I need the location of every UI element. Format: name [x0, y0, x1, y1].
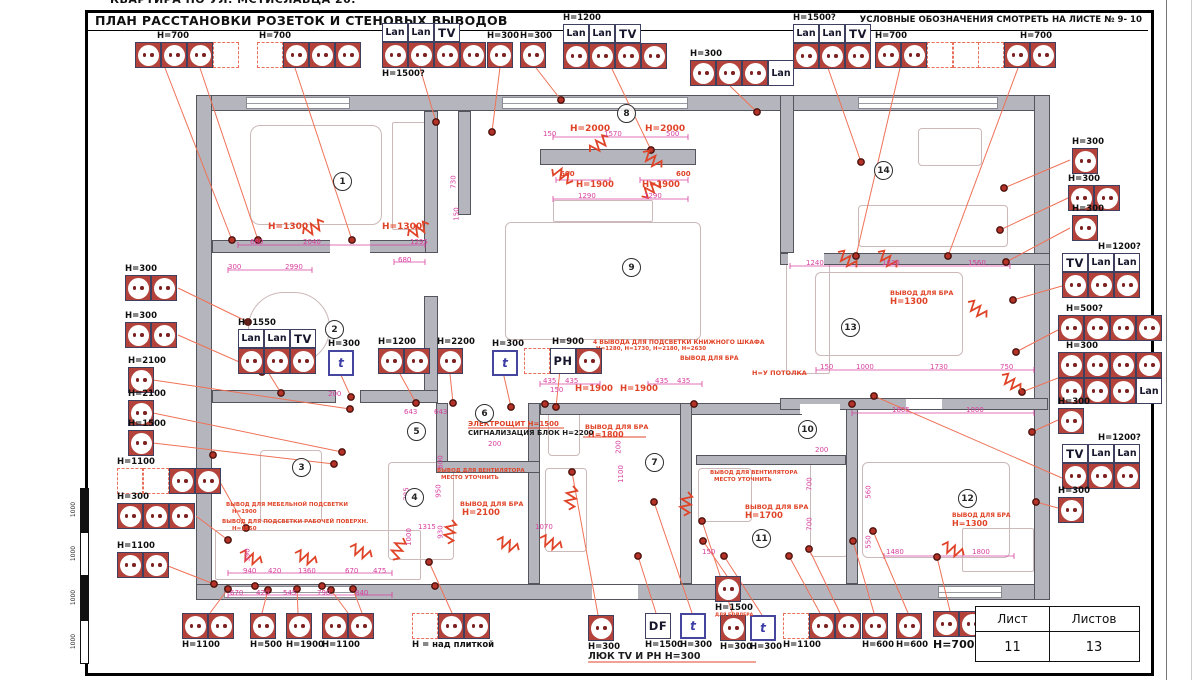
power-socket	[378, 348, 404, 374]
room-number: 4	[405, 488, 424, 507]
dimension-label: 1730	[930, 363, 948, 371]
heating-zigzag-symbol	[965, 298, 990, 321]
dimension-label: 475	[373, 567, 386, 575]
socket-pin	[472, 624, 476, 628]
socket-face	[411, 45, 432, 66]
room-number: 2	[325, 320, 344, 339]
socket-face	[1061, 500, 1082, 521]
socket-pin	[750, 71, 754, 75]
socket-height-label: Н = над плиткой	[412, 640, 494, 650]
power-socket	[437, 348, 463, 374]
annotation-red: H=1900	[576, 180, 614, 190]
socket-pin	[305, 359, 309, 363]
power-socket	[382, 42, 408, 68]
dimension-label: 420	[268, 567, 281, 575]
dimension-label: 560	[865, 485, 873, 498]
leader-line	[873, 531, 908, 613]
socket-pin	[140, 286, 144, 290]
outlet-point-dot	[849, 401, 855, 407]
annotation-red: H=1300	[952, 519, 988, 528]
power-socket	[135, 42, 161, 68]
socket-pin	[291, 53, 295, 57]
socket-pin	[890, 53, 894, 57]
dimension-label: 1000	[856, 363, 874, 371]
scale-bar-label: 1000	[70, 546, 77, 561]
socket-pin	[133, 286, 137, 290]
socket-height-label: H=300	[750, 642, 782, 652]
dimension-label: 150	[820, 363, 833, 371]
power-socket	[195, 468, 221, 494]
socket-face	[138, 45, 159, 66]
outlet-point-dot	[339, 449, 345, 455]
room-number: 11	[752, 529, 771, 548]
outlet-point-dot	[211, 581, 217, 587]
socket-height-label: H=1200	[378, 337, 416, 347]
socket-face	[523, 45, 544, 66]
socket-face	[848, 46, 869, 67]
leader-line	[178, 288, 248, 322]
dimension-label: 390	[244, 548, 252, 561]
power-socket	[615, 43, 641, 69]
power-socket	[250, 613, 276, 639]
dimension-label: 1000	[966, 406, 984, 414]
leader-line	[948, 68, 1018, 256]
socket-pin	[1118, 363, 1122, 367]
planned-socket-placeholder	[953, 42, 979, 68]
dimension-label: 1100	[617, 465, 625, 483]
socket-height-label: H=2100	[128, 389, 166, 399]
lan-outlet-box: Lan	[238, 329, 264, 348]
power-socket	[438, 613, 464, 639]
outlet-point-dot	[945, 253, 951, 259]
socket-face	[579, 351, 600, 372]
socket-pin	[143, 378, 147, 382]
socket-pin	[294, 624, 298, 628]
dimension-label: 1290	[644, 192, 662, 200]
socket-face	[1113, 355, 1134, 376]
power-socket	[1136, 315, 1162, 341]
socket-pin	[350, 53, 354, 57]
socket-face	[131, 433, 152, 454]
annotation-red: ВЫВОД ДЛЯ ВЕНТИЛЯТОРА	[710, 470, 798, 476]
leader-line	[809, 549, 840, 613]
socket-height-label: H=1100	[322, 640, 360, 650]
annotation-red: H=1300	[382, 222, 422, 232]
annotation-black: СИГНАЛИЗАЦИЯ БЛОК H=2200	[468, 429, 593, 437]
sheet-header-label: Лист	[976, 609, 1049, 629]
socket-face	[1007, 45, 1028, 66]
room-number: 8	[617, 104, 636, 123]
socket-pin	[1125, 389, 1129, 393]
power-socket	[641, 43, 667, 69]
socket-pin	[1066, 326, 1070, 330]
heating-zigzag-symbol	[538, 533, 564, 552]
room-number: 5	[407, 422, 426, 441]
socket-pin	[158, 514, 162, 518]
annotation-red: H=2100	[462, 508, 500, 518]
power-socket	[1058, 352, 1084, 378]
leader-line	[200, 68, 258, 240]
power-socket	[238, 348, 264, 374]
socket-pin	[883, 53, 887, 57]
heating-zigzag-symbol	[679, 491, 693, 516]
socket-pin	[1099, 363, 1103, 367]
annotation-red: H=У ПОТОЛКА	[752, 369, 807, 377]
dimension-label: 643	[434, 408, 447, 416]
outlet-point-dot	[1003, 259, 1009, 265]
dimension-label: 790	[317, 589, 330, 597]
socket-face	[865, 616, 886, 637]
annotation-red: H=1700	[745, 511, 783, 521]
dimension-label: 680	[250, 238, 263, 246]
socket-pin	[223, 624, 227, 628]
socket-pin	[210, 479, 214, 483]
planned-socket-placeholder	[143, 468, 169, 494]
socket-pin	[1109, 196, 1113, 200]
socket-face	[1075, 151, 1096, 172]
socket-pin	[911, 624, 915, 628]
power-socket	[576, 348, 602, 374]
leader-line	[789, 556, 820, 613]
socket-face	[128, 325, 149, 346]
socket-face	[1033, 45, 1054, 66]
leader-line	[730, 86, 757, 112]
tv-outlet-box: TV	[434, 23, 460, 42]
outlet-point-dot	[347, 406, 353, 412]
socket-pin	[132, 514, 136, 518]
socket-pin	[948, 622, 952, 626]
socket-pin	[1099, 326, 1103, 330]
power-socket	[1084, 315, 1110, 341]
power-socket	[128, 430, 154, 456]
outlet-point-dot	[699, 518, 705, 524]
power-socket	[1030, 42, 1056, 68]
outlet-point-dot	[553, 404, 559, 410]
dimension-label: 1830	[882, 259, 900, 267]
power-socket	[1058, 315, 1084, 341]
socket-pin	[1045, 53, 1049, 57]
socket-height-label: H=300	[492, 339, 524, 349]
socket-height-label: H=300	[690, 49, 722, 59]
title-block: Лист Листов 11 13	[975, 606, 1140, 662]
room-number: 7	[645, 453, 664, 472]
socket-pin	[623, 54, 627, 58]
socket-pin	[817, 624, 821, 628]
dimension-label: 670	[230, 589, 243, 597]
scale-bar-label: 1000	[70, 634, 77, 649]
socket-face	[878, 45, 899, 66]
socket-face	[440, 351, 461, 372]
power-socket	[1058, 497, 1084, 523]
socket-pin	[136, 378, 140, 382]
power-socket	[117, 503, 143, 529]
socket-height-label: H=1200?	[1098, 433, 1141, 443]
socket-face	[693, 63, 714, 84]
socket-height-label: H=300	[588, 642, 620, 652]
socket-pin	[502, 53, 506, 57]
annotation-red: 600	[560, 170, 575, 178]
socket-face	[1087, 318, 1108, 339]
socket-height-label: H=900	[552, 337, 584, 347]
socket-pin	[169, 53, 173, 57]
socket-pin	[1103, 283, 1107, 287]
power-socket	[286, 613, 312, 639]
tv-outlet-box: TV	[1062, 253, 1088, 272]
socket-pin	[203, 479, 207, 483]
socket-height-label: H=1100	[182, 640, 220, 650]
heating-zigzag-symbol	[443, 519, 457, 544]
outlet-point-dot	[721, 553, 727, 559]
room-number: 12	[958, 489, 977, 508]
socket-pin	[1122, 474, 1126, 478]
socket-face	[1065, 466, 1086, 487]
annotation-red: ВЫВОД ДЛЯ ПОДСВЕТКИ РАБОЧЕЙ ПОВЕРХН.	[222, 519, 368, 525]
annotation-red: 4 ВЫВОДА ДЛЯ ПОДСВЕТКИ КНИЖНОГО ШКАФА	[593, 339, 764, 346]
socket-face	[154, 278, 175, 299]
socket-pin	[1096, 474, 1100, 478]
socket-pin	[195, 53, 199, 57]
socket-height-label: H=300	[125, 311, 157, 321]
socket-pin	[184, 514, 188, 518]
leader-line	[1000, 198, 1068, 230]
power-socket	[161, 42, 187, 68]
socket-pin	[630, 54, 634, 58]
socket-face	[1091, 275, 1112, 296]
socket-pin	[1151, 363, 1155, 367]
socket-pin	[877, 624, 881, 628]
socket-height-label: H=300	[720, 642, 752, 652]
socket-height-label: H=500?	[1066, 304, 1103, 314]
scale-bar-segment	[80, 532, 89, 576]
socket-pin	[253, 359, 257, 363]
socket-pin	[656, 54, 660, 58]
dimension-label: 200	[815, 446, 828, 454]
annotation-black: ЛЮК TV И PH H=300	[588, 651, 700, 662]
socket-face	[899, 616, 920, 637]
socket-face	[407, 351, 428, 372]
socket-pin	[1092, 389, 1096, 393]
dimension-label: 730	[450, 175, 458, 188]
socket-pin	[475, 53, 479, 57]
outlet-point-dot	[433, 119, 439, 125]
power-socket	[1110, 352, 1136, 378]
socket-face	[172, 506, 193, 527]
power-socket	[348, 613, 374, 639]
socket-pin	[390, 53, 394, 57]
socket-pin	[202, 53, 206, 57]
dimension-label: 2040	[303, 238, 321, 246]
power-socket	[901, 42, 927, 68]
socket-face	[172, 471, 193, 492]
socket-pin	[1080, 226, 1084, 230]
socket-pin	[578, 54, 582, 58]
socket-height-label: H=300	[1058, 486, 1090, 496]
outlet-point-dot	[1001, 185, 1007, 191]
outlet-point-dot	[651, 499, 657, 505]
power-socket	[408, 42, 434, 68]
socket-pin	[151, 563, 155, 567]
power-socket	[1072, 148, 1098, 174]
power-socket	[715, 576, 741, 602]
power-socket	[169, 503, 195, 529]
socket-pin	[1070, 283, 1074, 287]
socket-pin	[860, 54, 864, 58]
leader-line	[340, 373, 351, 397]
socket-pin	[158, 563, 162, 567]
planned-socket-placeholder	[117, 468, 143, 494]
power-socket	[1088, 272, 1114, 298]
dimension-label: 1800	[972, 548, 990, 556]
socket-height-label: H=600	[862, 640, 894, 650]
socket-pin	[176, 53, 180, 57]
dimension-label: 200	[328, 390, 341, 398]
outlet-point-dot	[489, 129, 495, 135]
power-socket	[862, 613, 888, 639]
outlet-point-dot	[413, 400, 419, 406]
lan-outlet-box: Lan	[264, 329, 290, 348]
outlet-point-dot	[349, 237, 355, 243]
lan-outlet-box: Lan	[1136, 378, 1162, 404]
power-socket	[208, 613, 234, 639]
power-socket	[896, 613, 922, 639]
leader-line	[1016, 330, 1058, 352]
power-socket	[151, 322, 177, 348]
socket-pin	[246, 359, 250, 363]
tv-outlet-box: TV	[1062, 444, 1088, 463]
dimension-label: 150	[550, 386, 563, 394]
socket-height-label: H=300	[1058, 397, 1090, 407]
socket-face	[719, 63, 740, 84]
socket-pin	[125, 514, 129, 518]
socket-pin	[279, 359, 283, 363]
socket-height-label: H=2100	[128, 356, 166, 366]
socket-pin	[136, 441, 140, 445]
socket-height-label: H=1200	[563, 13, 601, 23]
socket-height-label: H=1550	[238, 318, 276, 328]
outlet-point-dot	[806, 546, 812, 552]
room-number: 9	[622, 258, 641, 277]
socket-pin	[1073, 363, 1077, 367]
socket-pin	[724, 71, 728, 75]
outlet-point-dot	[997, 227, 1003, 233]
socket-pin	[1103, 474, 1107, 478]
socket-pin	[423, 53, 427, 57]
dimension-label: 150	[543, 130, 556, 138]
socket-pin	[363, 624, 367, 628]
socket-pin	[1099, 389, 1103, 393]
outlet-point-dot	[450, 400, 456, 406]
power-socket	[1004, 42, 1030, 68]
socket-pin	[843, 624, 847, 628]
power-socket	[563, 43, 589, 69]
annotation-red: H=1280, H=1730, H=2180, H=2630	[596, 346, 706, 352]
outlet-point-dot	[853, 253, 859, 259]
socket-face	[796, 46, 817, 67]
socket-pin	[731, 71, 735, 75]
socket-face	[822, 46, 843, 67]
power-socket	[322, 613, 348, 639]
power-socket	[464, 613, 490, 639]
socket-pin	[808, 54, 812, 58]
socket-pin	[159, 286, 163, 290]
socket-face	[618, 46, 639, 67]
socket-pin	[419, 359, 423, 363]
power-socket	[1110, 378, 1136, 404]
room-number: 13	[841, 318, 860, 337]
lan-outlet-box: Lan	[768, 60, 794, 86]
socket-pin	[151, 514, 155, 518]
socket-pin	[301, 624, 305, 628]
socket-pin	[449, 53, 453, 57]
socket-face	[723, 618, 744, 639]
room-number: 3	[292, 458, 311, 477]
annotation-red: ВЫВОД ДЛЯ БРА	[460, 500, 523, 508]
socket-pin	[824, 624, 828, 628]
dimension-label: 500	[666, 130, 679, 138]
socket-height-label: H=300	[1072, 137, 1104, 147]
dimension-label: 545	[283, 589, 296, 597]
power-socket	[742, 60, 768, 86]
socket-pin	[649, 54, 653, 58]
outlet-point-dot	[348, 394, 354, 400]
leader-line	[503, 372, 511, 407]
leader-line	[533, 64, 561, 100]
socket-face	[131, 370, 152, 391]
socket-face	[1113, 381, 1134, 402]
socket-face	[120, 555, 141, 576]
socket-height-label: H=1200?	[1098, 242, 1141, 252]
power-socket	[1084, 352, 1110, 378]
lan-outlet-box: Lan	[563, 24, 589, 43]
power-socket	[117, 552, 143, 578]
tv-outlet-box: TV	[845, 24, 871, 43]
socket-pin	[298, 359, 302, 363]
socket-height-label: H=600	[896, 640, 928, 650]
socket-pin	[1070, 474, 1074, 478]
room-number: 14	[874, 161, 893, 180]
socket-height-label: H=1100	[783, 640, 821, 650]
power-socket	[1114, 272, 1140, 298]
title-block-divider	[976, 631, 1139, 632]
socket-pin	[597, 54, 601, 58]
socket-height-label: H=300	[1066, 341, 1098, 351]
socket-pin	[143, 411, 147, 415]
socket-face	[1061, 318, 1082, 339]
annotation-red: H=1900	[575, 384, 613, 394]
socket-pin	[1077, 283, 1081, 287]
socket-pin	[140, 333, 144, 337]
dimension-label: 1000	[405, 528, 413, 546]
dimension-label: 643	[404, 408, 417, 416]
socket-pin	[528, 53, 532, 57]
socket-pin	[343, 53, 347, 57]
socket-face	[745, 63, 766, 84]
socket-face	[253, 616, 274, 637]
dimension-label: 1070	[535, 523, 553, 531]
socket-pin	[330, 624, 334, 628]
dimension-label: 950	[435, 484, 443, 497]
socket-pin	[1019, 53, 1023, 57]
power-socket	[819, 43, 845, 69]
dimension-label: 150	[453, 207, 461, 220]
annotation-red: МЕСТО УТОЧНИТЬ	[441, 475, 499, 481]
socket-pin	[535, 53, 539, 57]
power-socket	[264, 348, 290, 374]
socket-pin	[265, 624, 269, 628]
outlet-point-dot	[1033, 499, 1039, 505]
socket-face	[463, 45, 484, 66]
socket-face	[441, 616, 462, 637]
